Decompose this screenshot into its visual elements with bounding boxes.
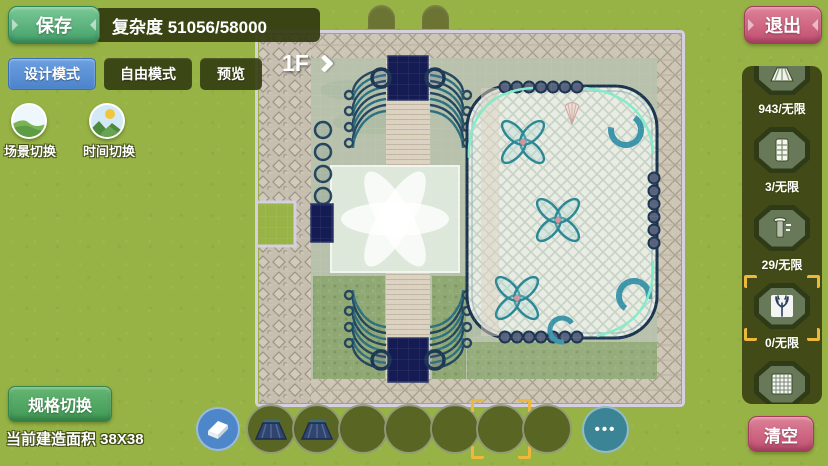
tab-preview[interactable]: 预览 [200, 58, 262, 90]
complexity-text: 复杂度 51056/58000 [112, 13, 267, 38]
tab-design-mode[interactable]: 设计模式 [8, 58, 96, 90]
tray-slot-4[interactable] [384, 404, 434, 454]
garden-map[interactable] [255, 30, 685, 407]
lattice-icon [768, 370, 796, 398]
tray-slot-6[interactable] [476, 404, 526, 454]
build-area-text: 当前建造面积 38X38 [6, 428, 144, 449]
item-slot-antler: 0/无限 [754, 283, 810, 357]
exit-label: 退出 [765, 12, 801, 38]
save-button[interactable]: 保存 [8, 6, 100, 44]
scene-switch-button[interactable] [11, 103, 47, 139]
more-items-button[interactable]: ••• [582, 406, 629, 453]
time-icon [91, 105, 123, 137]
eraser-icon [204, 417, 232, 441]
ellipsis-icon: ••• [595, 421, 617, 438]
chevron-decor-icon [812, 19, 818, 31]
item-slot-lattice [754, 361, 810, 404]
free-mode-label: 自由模式 [120, 64, 176, 84]
pillar-icon [768, 214, 796, 242]
chevron-right-icon[interactable] [315, 54, 333, 72]
tray-slot-7[interactable] [522, 404, 572, 454]
clear-button[interactable]: 清空 [748, 416, 814, 452]
tab-free-mode[interactable]: 自由模式 [104, 58, 192, 90]
roof-awning-icon [252, 415, 290, 443]
scene-switch-label: 场景切换 [2, 141, 58, 160]
lattice-slot-button[interactable] [754, 361, 810, 404]
tray-slot-3[interactable] [338, 404, 388, 454]
save-label: 保存 [36, 12, 72, 38]
map-grid [259, 34, 681, 403]
antler-slot-button[interactable] [754, 283, 810, 329]
exit-button[interactable]: 退出 [744, 6, 822, 44]
time-switch-label: 时间切换 [79, 141, 139, 160]
tray-slot-2[interactable] [292, 404, 342, 454]
garden-arch [422, 5, 449, 29]
item-tray [246, 404, 568, 454]
door-icon [768, 136, 796, 164]
preview-label: 预览 [217, 64, 245, 84]
item-count: 0/无限 [765, 334, 799, 351]
eraser-button[interactable] [196, 407, 240, 451]
item-slot-pillar: 29/无限 [754, 205, 810, 279]
tray-slot-1[interactable] [246, 404, 296, 454]
clear-label: 清空 [764, 422, 798, 447]
design-mode-label: 设计模式 [24, 64, 80, 84]
item-slot-door: 3/无限 [754, 127, 810, 201]
complexity-bar: 复杂度 51056/58000 [94, 8, 320, 42]
item-count: 29/无限 [762, 256, 803, 273]
tray-slot-5[interactable] [430, 404, 480, 454]
awning-icon [768, 66, 796, 85]
chevron-decor-icon [90, 19, 96, 31]
item-count: 3/无限 [765, 178, 799, 195]
roof-awning-icon [298, 415, 336, 443]
item-category-panel: 943/无限 3/无限 29/无限 [742, 66, 822, 404]
floor-label: 1F [282, 50, 309, 77]
antler-icon [768, 292, 796, 320]
pillar-slot-button[interactable] [754, 205, 810, 251]
item-slot-awning: 943/无限 [754, 66, 810, 123]
garden-arch [368, 5, 395, 29]
awning-slot-button[interactable] [754, 66, 810, 95]
chevron-decor-icon [748, 19, 754, 31]
time-switch-button[interactable] [89, 103, 125, 139]
door-slot-button[interactable] [754, 127, 810, 173]
spec-switch-label: 规格切换 [28, 392, 92, 416]
scene-icon [13, 105, 45, 137]
floor-indicator: 1F [282, 50, 331, 77]
spec-switch-button[interactable]: 规格切换 [8, 386, 112, 422]
chevron-decor-icon [12, 19, 18, 31]
item-count: 943/无限 [758, 100, 805, 117]
